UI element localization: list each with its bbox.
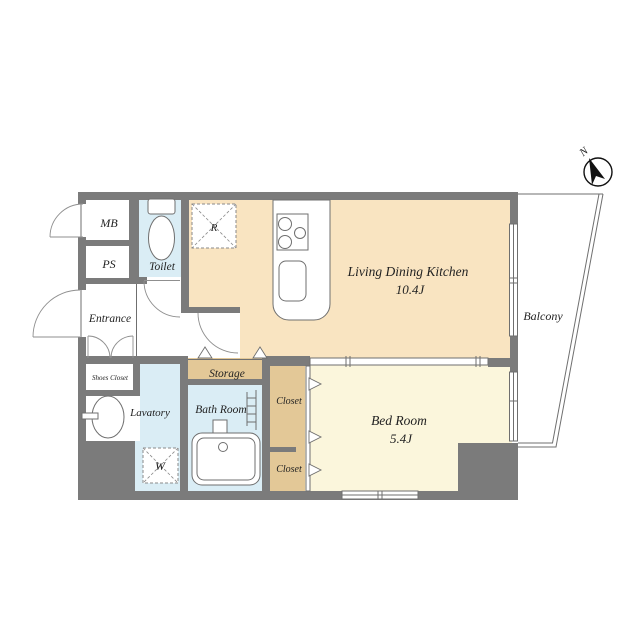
bedroom-bottom-window <box>342 491 418 499</box>
hallway-extension-floor <box>183 313 240 362</box>
bedroom-label: Bed Room <box>371 413 427 428</box>
entrance-door-arc <box>33 290 80 337</box>
bath-tap <box>213 420 227 433</box>
washbasin-lever <box>82 413 98 419</box>
compass-icon: N <box>577 145 612 186</box>
entrance-label: Entrance <box>88 313 131 325</box>
wall-closet-divider-stub <box>270 447 296 452</box>
ldk-window <box>510 224 518 336</box>
bedroom-side-window <box>510 372 518 441</box>
wall-hall-ldk-stub <box>181 307 240 313</box>
wall-shoes-bottom <box>84 390 140 396</box>
bathtub-outer <box>192 433 260 485</box>
wall-toilet-right <box>181 192 189 313</box>
wall-mass-bottom-left <box>78 441 135 493</box>
entrance-door-gap <box>78 290 86 337</box>
wall-lavatory-bath-divider <box>180 356 188 495</box>
washer-label: W <box>155 459 166 473</box>
wall-closet-left <box>262 356 270 495</box>
toilet-fixture <box>148 199 175 260</box>
wall-right-upper <box>510 192 518 224</box>
floor-plan-drawing: N Living Dining Kitchen 10.4J Bed Room 5… <box>0 0 640 640</box>
floor-plan-page: N Living Dining Kitchen 10.4J Bed Room 5… <box>0 0 640 640</box>
wall-entrance-bottom <box>78 356 183 364</box>
closet-upper-label: Closet <box>276 396 302 407</box>
hallway-floor <box>135 280 189 362</box>
ldk-label: Living Dining Kitchen <box>347 264 469 279</box>
wall-right-mid <box>510 336 518 372</box>
wall-closet-top <box>262 356 310 366</box>
mb-label: MB <box>99 216 118 230</box>
bathroom-label: Bath Room <box>195 404 246 416</box>
toilet-tank <box>148 199 175 214</box>
balcony-label: Balcony <box>523 309 563 323</box>
lavatory-label: Lavatory <box>129 407 170 419</box>
toilet-label: Toilet <box>149 261 176 273</box>
wall-mb-ps-divider <box>84 240 139 246</box>
ldk-size-label: 10.4J <box>396 282 426 297</box>
ps-label: PS <box>101 257 115 271</box>
corner-column <box>458 443 518 500</box>
wall-mb-column <box>129 192 139 284</box>
fridge-label: R <box>210 222 218 234</box>
compass-north-label: N <box>577 145 592 160</box>
ldk-bedroom-sliding-partition <box>310 358 488 365</box>
wall-partition-solid <box>488 358 510 367</box>
shoes-closet-label: Shoes Closet <box>92 374 129 382</box>
storage-label: Storage <box>209 368 245 380</box>
closet-lower-label: Closet <box>276 464 302 475</box>
bedroom-size-label: 5.4J <box>390 431 413 446</box>
mb-door-gap <box>78 204 86 237</box>
toilet-bowl <box>149 216 175 260</box>
wall-top <box>78 192 518 200</box>
